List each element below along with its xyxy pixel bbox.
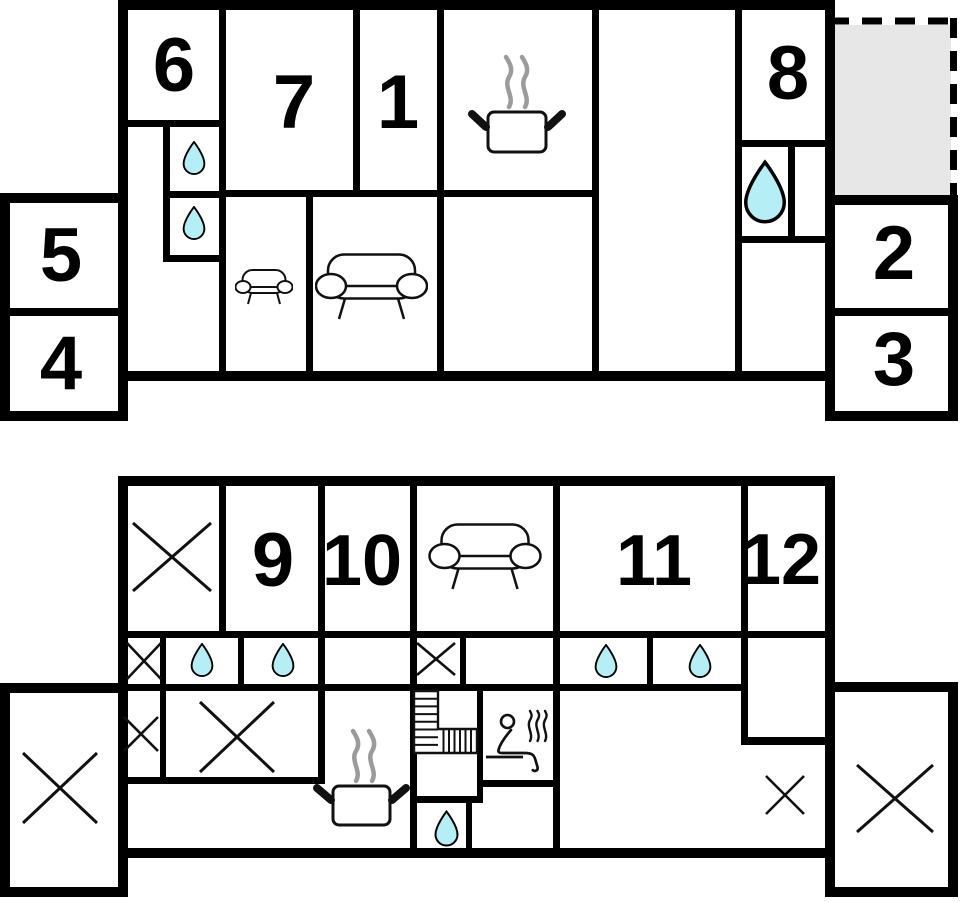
room-label-2: 2 (873, 216, 915, 292)
room-label-3: 3 (873, 322, 915, 398)
room-label-7: 7 (273, 65, 315, 141)
water-drop-icon (690, 645, 711, 677)
crossed-cell-icon (127, 643, 161, 679)
sauna-icon (486, 711, 547, 771)
sofa-small-icon (236, 270, 293, 304)
room-label-9: 9 (252, 523, 294, 599)
water-drop-icon (436, 812, 458, 846)
sofa-large-icon (316, 255, 427, 320)
water-drop-icon (192, 644, 213, 676)
upper-floor-walls (0, 0, 958, 421)
water-drop-large-icon (746, 162, 785, 222)
floor-plan: 6 7 1 8 5 4 2 3 9 10 11 12 (0, 0, 960, 902)
room-label-12: 12 (741, 524, 821, 596)
room-label-6: 6 (153, 28, 195, 104)
water-drop-icon (273, 644, 294, 676)
room-label-5: 5 (40, 218, 82, 294)
cooking-pot-icon (317, 731, 406, 825)
water-drop-icon (596, 645, 617, 677)
room-label-10: 10 (322, 525, 402, 597)
terrace-dashed-area (829, 18, 958, 195)
crossed-cell-icon (124, 717, 158, 751)
water-drop-icon (184, 207, 205, 239)
water-drop-icon (184, 142, 205, 174)
stairs-icon (414, 691, 477, 753)
cooking-pot-icon (472, 57, 562, 152)
crossed-room-icon (133, 523, 211, 591)
upper-floor (0, 0, 958, 421)
crossed-room-icon (200, 702, 274, 772)
sofa-large-icon (430, 525, 541, 590)
room-label-4: 4 (40, 326, 82, 402)
room-label-11: 11 (616, 525, 692, 597)
room-label-8: 8 (767, 36, 809, 112)
crossed-room-icon (857, 765, 933, 832)
crossed-room-icon (23, 753, 97, 823)
crossed-cell-icon (417, 643, 455, 675)
room-label-1: 1 (377, 65, 419, 141)
floor-plan-canvas (0, 0, 960, 902)
crossed-cell-icon (766, 776, 804, 814)
